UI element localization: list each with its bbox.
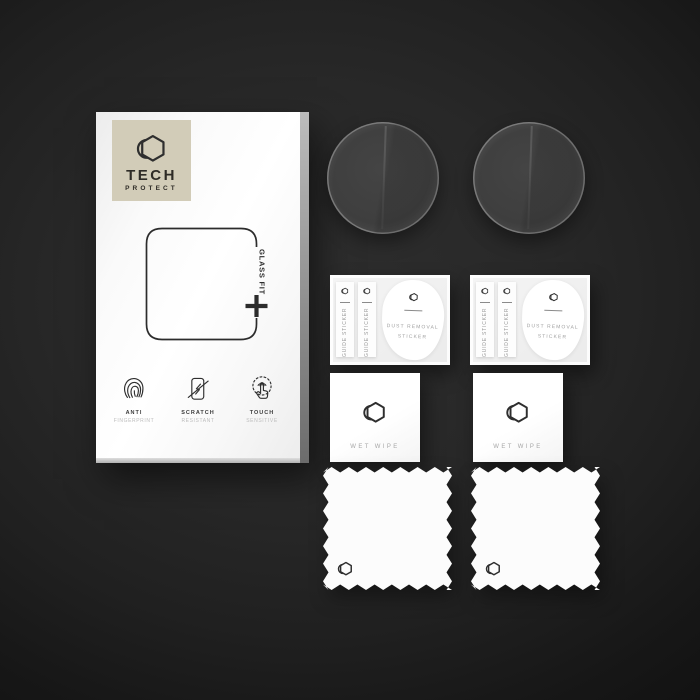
cleaning-cloth bbox=[471, 467, 600, 590]
brand-hexagon-icon bbox=[409, 292, 419, 302]
product-box: TECH PROTECT GLASS FIT ANTI FINGE bbox=[96, 112, 309, 463]
fingerprint-icon bbox=[119, 374, 149, 404]
brand-hexagon-icon bbox=[337, 560, 354, 577]
feature-title: ANTI bbox=[104, 410, 164, 416]
dust-removal-sticker: DUST REMOVAL STICKER bbox=[381, 279, 446, 361]
brand-hexagon-icon bbox=[341, 287, 349, 295]
divider bbox=[480, 302, 490, 303]
brand-subname: PROTECT bbox=[112, 185, 191, 192]
feature-subtitle: SENSITIVE bbox=[232, 418, 292, 424]
feature-item: ANTI FINGERPRINT bbox=[104, 374, 164, 424]
sticker-sheet: GUIDE STICKER GUIDE STICKER DUST REMOVAL… bbox=[330, 275, 450, 365]
plus-icon bbox=[246, 295, 268, 317]
brand-hexagon-icon bbox=[363, 287, 371, 295]
guide-sticker-label: GUIDE STICKER bbox=[504, 306, 510, 358]
wet-wipe-packet: WET WIPE bbox=[473, 373, 563, 462]
brand-hexagon-icon bbox=[549, 292, 559, 302]
cleaning-cloth bbox=[323, 467, 452, 590]
box-side-edge bbox=[300, 112, 309, 463]
product-photo: TECH PROTECT GLASS FIT ANTI FINGE bbox=[0, 0, 700, 700]
feature-subtitle: RESISTANT bbox=[168, 418, 228, 424]
scratch-resistant-icon bbox=[183, 374, 213, 404]
divider bbox=[362, 302, 372, 303]
feature-item: SCRATCH RESISTANT bbox=[168, 374, 228, 424]
box-bottom-edge bbox=[96, 458, 300, 463]
dust-removal-sticker: DUST REMOVAL STICKER bbox=[521, 279, 586, 361]
wet-wipe-packet: WET WIPE bbox=[330, 373, 420, 462]
divider bbox=[502, 302, 512, 303]
guide-sticker-label: GUIDE STICKER bbox=[342, 306, 348, 358]
divider bbox=[404, 310, 422, 312]
glass-fit-label: GLASS FIT bbox=[258, 249, 267, 295]
guide-sticker-strip: GUIDE STICKER bbox=[336, 282, 354, 357]
guide-sticker-label: GUIDE STICKER bbox=[364, 306, 370, 358]
guide-sticker-strip: GUIDE STICKER bbox=[476, 282, 494, 357]
guide-sticker-label: GUIDE STICKER bbox=[482, 306, 488, 358]
brand-hexagon-icon bbox=[481, 287, 489, 295]
rounded-square-outline bbox=[147, 229, 257, 340]
glass-disc-left bbox=[327, 122, 439, 234]
feature-item: TOUCH SENSITIVE bbox=[232, 374, 292, 424]
glass-fit-outline: GLASS FIT bbox=[136, 212, 271, 352]
wet-wipe-label: WET WIPE bbox=[473, 444, 563, 450]
brand-hexagon-icon bbox=[362, 399, 388, 425]
sticker-sheet: GUIDE STICKER GUIDE STICKER DUST REMOVAL… bbox=[470, 275, 590, 365]
cleaning-cloth-surface bbox=[471, 467, 600, 590]
wet-wipe-label: WET WIPE bbox=[330, 444, 420, 450]
divider bbox=[544, 310, 562, 312]
feature-title: SCRATCH bbox=[168, 410, 228, 416]
feature-subtitle: FINGERPRINT bbox=[104, 418, 164, 424]
glass-disc-right bbox=[473, 122, 585, 234]
brand-hexagon-icon bbox=[505, 399, 531, 425]
guide-sticker-strip: GUIDE STICKER bbox=[498, 282, 516, 357]
feature-title: TOUCH bbox=[232, 410, 292, 416]
brand-hexagon-icon bbox=[135, 131, 169, 165]
brand-hexagon-icon bbox=[485, 560, 502, 577]
cleaning-cloth-surface bbox=[323, 467, 452, 590]
brand-name: TECH bbox=[112, 168, 191, 183]
touch-sensitive-icon bbox=[247, 374, 277, 404]
brand-logo-badge: TECH PROTECT bbox=[112, 120, 191, 201]
divider bbox=[340, 302, 350, 303]
guide-sticker-strip: GUIDE STICKER bbox=[358, 282, 376, 357]
feature-list: ANTI FINGERPRINT SCRATCH RESISTANT bbox=[104, 374, 292, 424]
box-face: TECH PROTECT GLASS FIT ANTI FINGE bbox=[96, 112, 300, 458]
brand-hexagon-icon bbox=[503, 287, 511, 295]
